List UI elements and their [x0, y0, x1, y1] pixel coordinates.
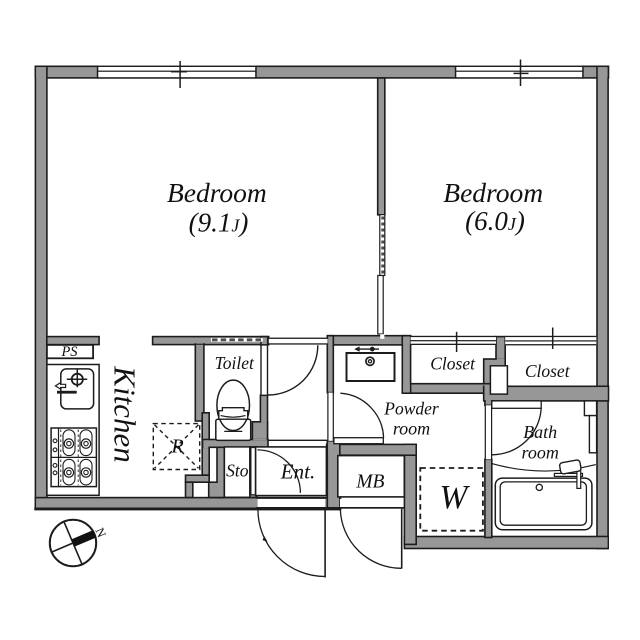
svg-text:Toilet: Toilet	[215, 353, 255, 373]
svg-text:MB: MB	[355, 471, 384, 492]
svg-text:room: room	[393, 419, 430, 439]
svg-text:room: room	[522, 443, 559, 463]
svg-text:Powder: Powder	[383, 399, 439, 419]
svg-text:Bedroom: Bedroom	[443, 177, 543, 208]
svg-text:W: W	[440, 479, 471, 516]
svg-text:Bedroom: Bedroom	[167, 177, 267, 208]
svg-text:PS: PS	[60, 344, 78, 360]
svg-text:R: R	[170, 436, 183, 458]
svg-text:Ent.: Ent.	[280, 460, 315, 484]
svg-text:Closet: Closet	[430, 354, 476, 374]
svg-text:Closet: Closet	[525, 361, 571, 381]
svg-text:Sto: Sto	[226, 461, 249, 481]
svg-text:(9.1J): (9.1J)	[189, 208, 249, 238]
svg-text:(6.0J): (6.0J)	[465, 206, 525, 236]
svg-text:Kitchen: Kitchen	[107, 365, 142, 462]
svg-text:Bath: Bath	[523, 422, 557, 442]
